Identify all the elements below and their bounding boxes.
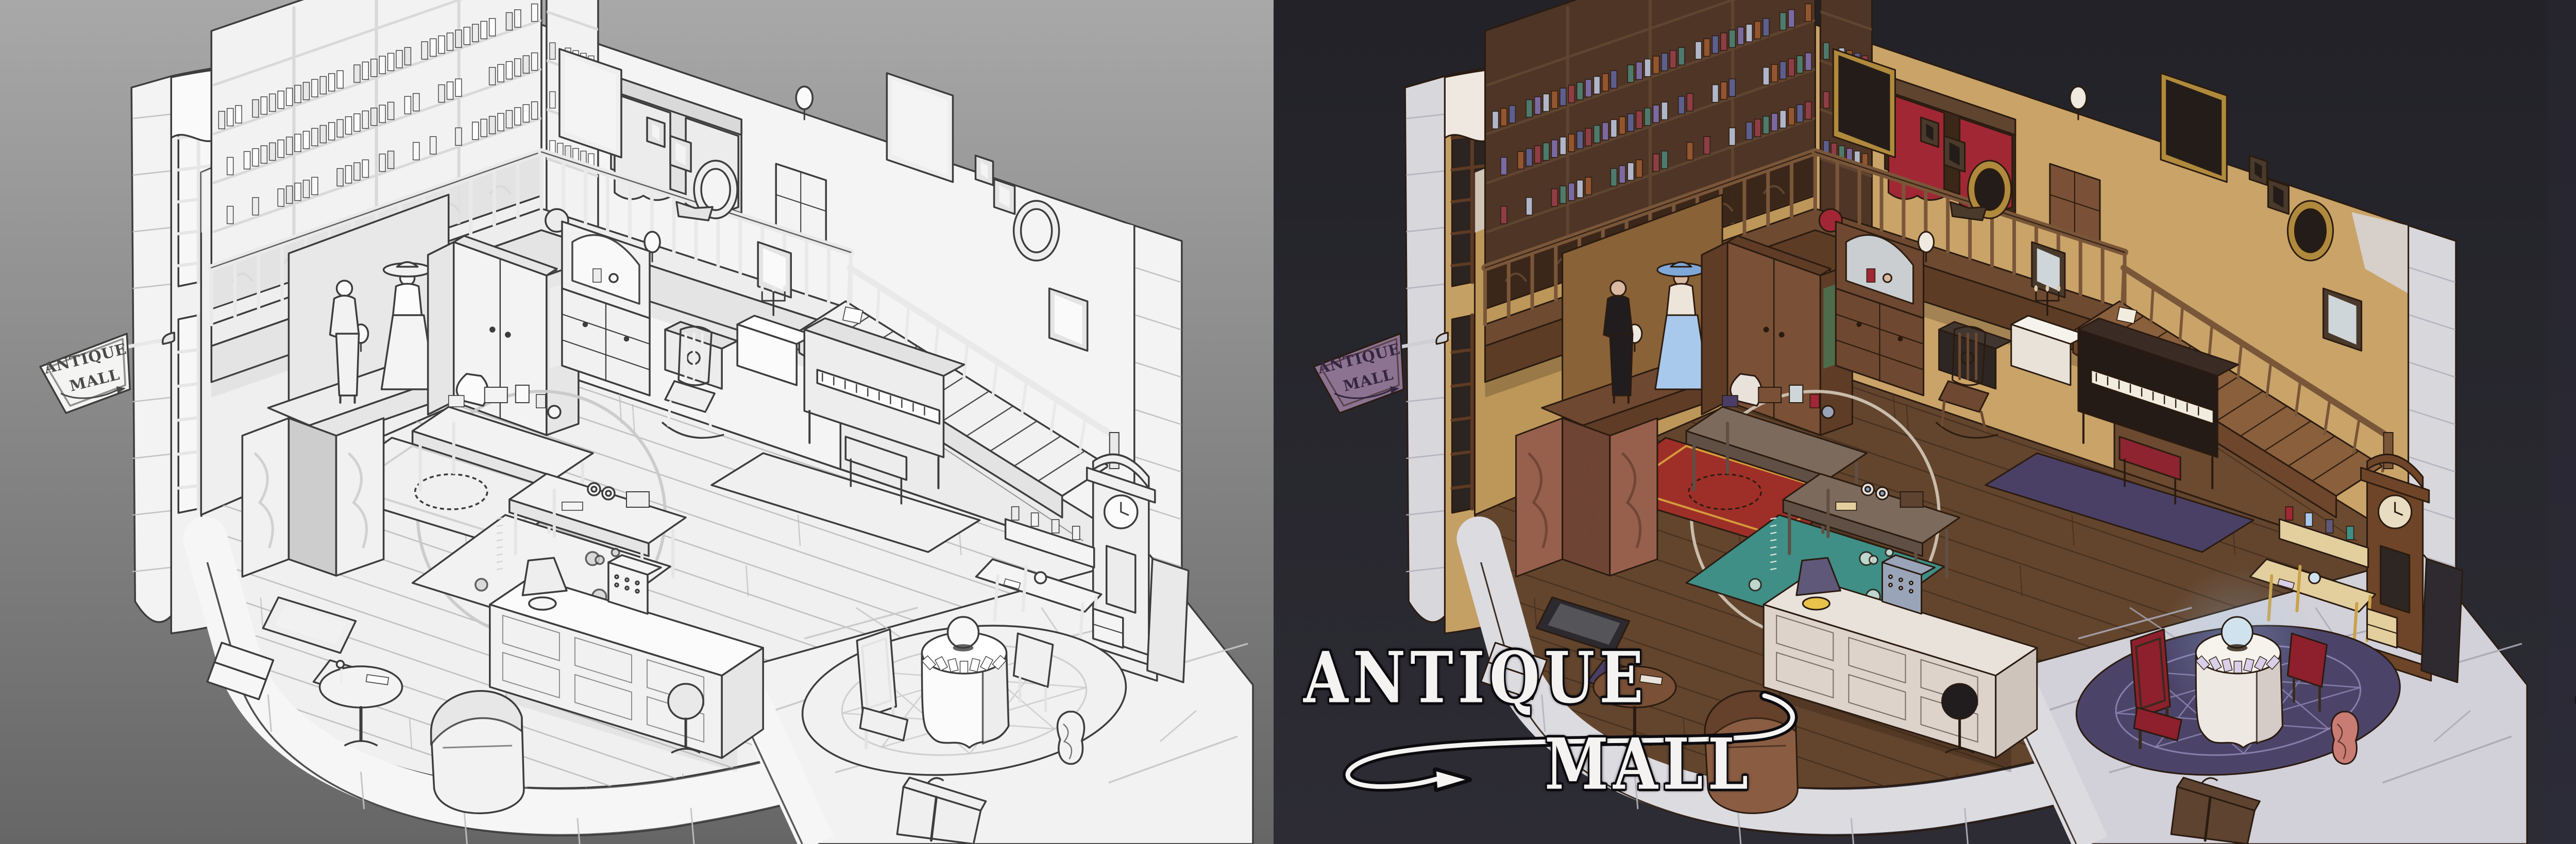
scene-flat-color-illustration: ANTIQUEMALL: [1274, 0, 2548, 844]
scene-final-lighting-illustration: ANTIQUEMALL: [2548, 0, 2576, 844]
scene-lineart-illustration: ANTIQUEMALL: [0, 0, 1274, 844]
triptych: ANTIQUEMALL ANTIQUEMALL ANTIQUE: [0, 0, 2576, 844]
panel-lineart: ANTIQUEMALL: [0, 0, 1274, 844]
panel-final-lighting: ANTIQUEMALL ANTIQUE MALL: [2548, 0, 2576, 844]
panel-flat-color: ANTIQUEMALL ANTIQUE MALL: [1274, 0, 2548, 844]
